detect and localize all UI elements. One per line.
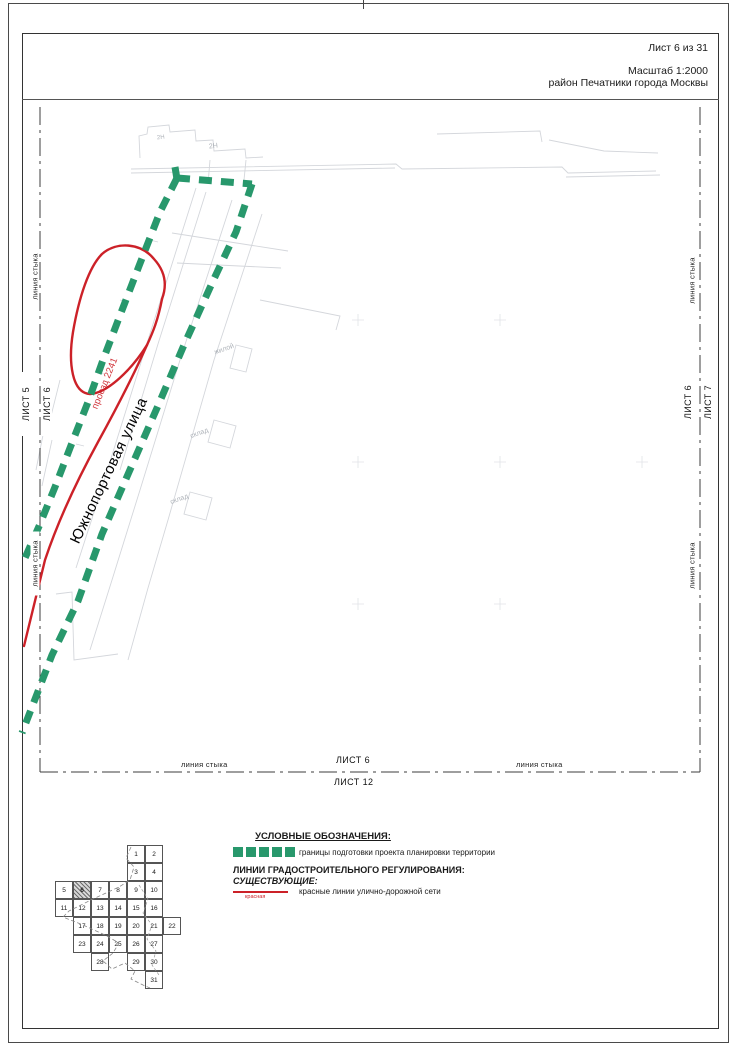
boundary-dash-symbol — [233, 847, 295, 857]
legend-section-title: ЛИНИИ ГРАДОСТРОИТЕЛЬНОГО РЕГУЛИРОВАНИЯ: — [233, 865, 465, 876]
legend-title: УСЛОВНЫЕ ОБОЗНАЧЕНИЯ: — [233, 831, 413, 842]
grid-crosses — [352, 314, 648, 610]
legend-boundary-label: границы подготовки проекта планировки те… — [299, 848, 495, 857]
junction-label-left-top: линия стыка — [31, 245, 40, 309]
junction-label-left-bottom: линия стыка — [31, 532, 40, 596]
legend-red-line-label: красные линии улично-дорожной сети — [299, 887, 441, 896]
left-sheet-5-label: ЛИСТ 5 — [21, 372, 31, 436]
boundary-top-run — [177, 178, 252, 184]
right-sheet-6-label: ЛИСТ 6 — [683, 370, 693, 434]
bottom-sheet-12-label: ЛИСТ 12 — [328, 777, 379, 787]
legend-section: ЛИНИИ ГРАДОСТРОИТЕЛЬНОГО РЕГУЛИРОВАНИЯ: … — [233, 865, 465, 887]
cadastral-base-lines — [36, 125, 660, 660]
sheet-index-grid: 1234567891011121314151617181920212223242… — [55, 845, 181, 989]
red-turnaround-loop — [71, 245, 165, 394]
junction-label-right-top: линия стыка — [688, 249, 697, 313]
plan-sheet: Лист 6 из 31 Масштаб 1:2000 район Печатн… — [0, 0, 736, 1050]
junction-label-bottom-left: линия стыка — [175, 760, 234, 769]
project-boundary — [22, 167, 252, 733]
red-lines — [24, 245, 165, 646]
cadastral-text-label: 2Н — [157, 135, 165, 142]
bottom-sheet-6-label: ЛИСТ 6 — [330, 755, 376, 765]
red-line-symbol — [233, 891, 288, 893]
red-line-caption: красная — [245, 894, 265, 900]
junction-label-right-bottom: линия стыка — [688, 534, 697, 598]
sheet-index-boundary-line — [55, 845, 181, 989]
legend-section-subtitle: СУЩЕСТВУЮЩИЕ: — [233, 876, 465, 887]
left-sheet-6-label: ЛИСТ 6 — [42, 372, 52, 436]
junction-frame-lines — [40, 107, 700, 772]
cadastral-text-label: 2Н — [209, 143, 219, 151]
right-sheet-7-label: ЛИСТ 7 — [703, 370, 713, 434]
junction-label-bottom-right: линия стыка — [510, 760, 569, 769]
